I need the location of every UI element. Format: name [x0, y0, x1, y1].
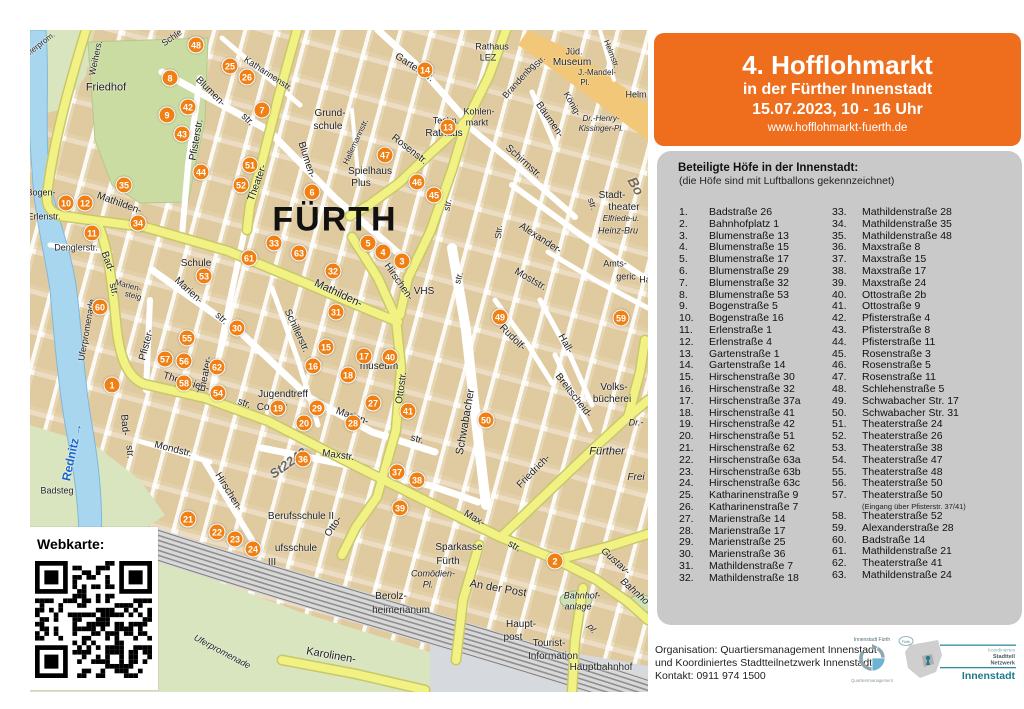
- map-label: Bahnhof-: [564, 592, 601, 601]
- map-marker-44: 44: [193, 164, 210, 181]
- participant-number: 27.: [679, 514, 705, 526]
- participant-address: Blumenstraße 32: [709, 278, 829, 290]
- map-label: Museum: [553, 58, 591, 68]
- city-name-label: FÜRTH: [272, 201, 397, 240]
- quartiersmanagement-logo: Innenstadt Fürth Quartiersmanagement: [851, 637, 893, 683]
- map-marker-11: 11: [84, 225, 101, 242]
- participant-number: 54.: [832, 455, 858, 467]
- participants-column-2: 33.Mathildenstraße 2834.Mathildenstraße …: [832, 207, 1017, 582]
- participant-number: 7.: [679, 278, 705, 290]
- map-label: Denglerstr.: [54, 244, 98, 253]
- svg-text:Stadtteil: Stadtteil: [993, 654, 1016, 660]
- participant-address: Theaterstraße 47: [862, 455, 1017, 467]
- participant-row: 63.Mathildenstraße 24: [832, 570, 1017, 582]
- map-marker-43: 43: [174, 126, 191, 143]
- map-label: schule: [314, 122, 343, 132]
- participant-number: 16.: [679, 384, 705, 396]
- participant-number: 39.: [832, 278, 858, 290]
- participant-row: 12.Erlenstraße 4: [679, 337, 829, 349]
- map-marker-26: 26: [239, 69, 256, 86]
- map-marker-21: 21: [180, 511, 197, 528]
- map-marker-10: 10: [58, 195, 75, 212]
- map-marker-27: 27: [365, 395, 382, 412]
- participant-address: Mathildenstraße 35: [862, 219, 1017, 231]
- map-marker-17: 17: [356, 348, 373, 365]
- map-label: Haupt-: [506, 620, 536, 630]
- participant-row: 39.Maxstraße 24: [832, 278, 1017, 290]
- map-label: Berolz-: [375, 592, 407, 602]
- participant-number: 57.: [832, 490, 858, 502]
- participant-row: 31.Mathildenstraße 7: [679, 561, 829, 573]
- participant-address: Mathildenstraße 18: [709, 573, 829, 585]
- map-label: Sparkasse: [435, 543, 482, 553]
- map-marker-36: 36: [295, 451, 312, 468]
- map-marker-24: 24: [245, 541, 262, 558]
- participant-row: 32.Mathildenstraße 18: [679, 573, 829, 585]
- participant-address: Bahnhofplatz 1: [709, 219, 829, 231]
- map-marker-39: 39: [392, 500, 409, 517]
- participants-heading: Beteiligte Höfe in der Innenstadt:: [678, 162, 1022, 174]
- svg-text:Koordiniertes: Koordiniertes: [988, 648, 1016, 653]
- participant-row: 48.Schlehenstraße 5: [832, 384, 1017, 396]
- map-marker-22: 22: [209, 524, 226, 541]
- map-marker-6: 6: [304, 184, 321, 201]
- map-marker-34: 34: [130, 215, 147, 232]
- map-marker-31: 31: [328, 304, 345, 321]
- map-label: Hauptbahnhof: [570, 663, 633, 673]
- participant-row: 21.Hirschenstraße 62: [679, 443, 829, 455]
- participant-address: Hirschenstraße 63a: [709, 455, 829, 467]
- participant-address: Blumenstraße 29: [709, 266, 829, 278]
- map-label: Elfriede-u.: [603, 215, 639, 223]
- map-label: Ha: [639, 276, 648, 285]
- participant-row: 54.Theaterstraße 47: [832, 455, 1017, 467]
- participant-number: 11.: [679, 325, 705, 337]
- participant-address: Pfisterstraße 8: [862, 325, 1017, 337]
- map-label: Information: [528, 652, 578, 662]
- participant-number: 31.: [679, 561, 705, 573]
- footer-logos: Innenstadt Fürth Quartiersmanagement Für…: [848, 630, 1024, 692]
- participant-address: Erlenstraße 4: [709, 337, 829, 349]
- map-label: Comödien-: [411, 570, 455, 579]
- participant-number: 58.: [832, 511, 858, 523]
- map-marker-61: 61: [241, 250, 258, 267]
- participant-number: 12.: [679, 337, 705, 349]
- map-label: anlage: [564, 603, 591, 612]
- participant-number: 34.: [832, 219, 858, 231]
- participant-row: 59.Alexanderstraße 28: [832, 523, 1017, 535]
- webkarte-title: Webkarte:: [37, 536, 158, 552]
- map-label: Badsteg: [40, 487, 73, 496]
- participant-row: 11.Erlenstraße 1: [679, 325, 829, 337]
- svg-text:Quartiersmanagement: Quartiersmanagement: [851, 678, 893, 683]
- map-marker-16: 16: [305, 358, 322, 375]
- map-marker-30: 30: [229, 320, 246, 337]
- map-label: Berufsschule II: [268, 512, 334, 522]
- organisation-line-1: Organisation: Quartiersmanagement Innens…: [655, 644, 877, 657]
- svg-text:Innenstadt: Innenstadt: [962, 670, 1016, 682]
- map-label: Str.: [494, 225, 504, 239]
- map-label: Pl.: [580, 79, 589, 87]
- map-marker-56: 56: [176, 353, 193, 370]
- organisation-info: Organisation: Quartiersmanagement Innens…: [655, 644, 877, 683]
- participant-row: 22.Hirschenstraße 63a: [679, 455, 829, 467]
- map-marker-12: 12: [77, 195, 94, 212]
- participant-number: 63.: [832, 570, 858, 582]
- map-marker-47: 47: [377, 147, 394, 164]
- map-marker-53: 53: [196, 268, 213, 285]
- participant-address: Maxstraße 17: [862, 266, 1017, 278]
- participant-address: Katharinenstraße 7: [709, 502, 829, 514]
- map-marker-35: 35: [116, 177, 133, 194]
- participant-number: 53.: [832, 443, 858, 455]
- participant-number: 44.: [832, 337, 858, 349]
- map-label: theater: [608, 203, 639, 213]
- participant-row: 38.Maxstraße 17: [832, 266, 1017, 278]
- map-marker-33: 33: [266, 235, 283, 252]
- map-label: str.: [123, 445, 134, 459]
- map-label: Tourist-: [533, 639, 566, 649]
- event-datetime: 15.07.2023, 10 - 16 Uhr: [654, 100, 1021, 120]
- event-website-link[interactable]: www.hofflohmarkt-fuerth.de: [654, 120, 1021, 136]
- map-marker-60: 60: [92, 299, 109, 316]
- participant-row: 49.Schwabacher Str. 17: [832, 396, 1017, 408]
- participant-row: 57.Theaterstraße 50(Eingang über Pfister…: [832, 490, 1017, 511]
- participant-row: 53.Theaterstraße 38: [832, 443, 1017, 455]
- map-marker-40: 40: [382, 349, 399, 366]
- map-label: Kissinger-Pl.: [579, 125, 624, 133]
- participant-number: 38.: [832, 266, 858, 278]
- map-label: J.-Mandel-: [578, 69, 616, 77]
- svg-text:Fürth: Fürth: [902, 640, 910, 644]
- map-marker-45: 45: [426, 187, 443, 204]
- participant-address: Pfisterstraße 11: [862, 337, 1017, 349]
- map-label: bücherei: [593, 395, 631, 405]
- map-label: Bogen-: [30, 189, 56, 198]
- participant-number: 22.: [679, 455, 705, 467]
- map-marker-42: 42: [180, 99, 197, 116]
- map-marker-46: 46: [409, 174, 426, 191]
- map-marker-50: 50: [478, 412, 495, 429]
- map-marker-38: 38: [409, 472, 426, 489]
- map-marker-23: 23: [227, 531, 244, 548]
- map-marker-9: 9: [159, 107, 176, 124]
- participants-column-1: 1.Badstraße 262.Bahnhofplatz 13.Blumenst…: [679, 207, 829, 585]
- participants-panel: Beteiligte Höfe in der Innenstadt: (die …: [657, 151, 1022, 625]
- map-marker-28: 28: [345, 415, 362, 432]
- participant-address: Theaterstraße 52: [862, 511, 1017, 523]
- map-marker-32: 32: [325, 263, 342, 280]
- map-marker-62: 62: [209, 359, 226, 376]
- participant-number: 43.: [832, 325, 858, 337]
- participant-row: 27.Marienstraße 14: [679, 514, 829, 526]
- map-marker-41: 41: [400, 403, 417, 420]
- participant-number: 17.: [679, 396, 705, 408]
- map-marker-63: 63: [291, 245, 308, 262]
- participant-address: Theaterstraße 38: [862, 443, 1017, 455]
- participant-address: Erlenstraße 1: [709, 325, 829, 337]
- map-marker-49: 49: [492, 309, 509, 326]
- map-marker-2: 2: [547, 553, 564, 570]
- map-marker-48: 48: [188, 37, 205, 54]
- map-label: Dr.-Henry-: [582, 115, 619, 123]
- participant-address: Hirschenstraße 62: [709, 443, 829, 455]
- participant-number: 59.: [832, 523, 858, 535]
- map-label: Amts-: [603, 260, 627, 269]
- participant-address: Mathildenstraße 24: [862, 570, 1017, 582]
- map-marker-29: 29: [309, 400, 326, 417]
- participant-address: Marienstraße 14: [709, 514, 829, 526]
- event-title: 4. Hofflohmarkt: [654, 50, 1021, 80]
- participant-address: Theaterstraße 50: [862, 490, 1017, 502]
- participant-row: 35.Mathildenstraße 48: [832, 231, 1017, 243]
- event-subtitle: in der Fürther Innenstadt: [654, 80, 1021, 100]
- map-label: LEZ: [480, 54, 497, 63]
- participants-subheading: (die Höfe sind mit Luftballons gekennzei…: [679, 175, 1022, 187]
- participant-number: 48.: [832, 384, 858, 396]
- map-label: Jüd.: [565, 48, 582, 57]
- map-marker-1: 1: [104, 377, 121, 394]
- participant-address: Mathildenstraße 7: [709, 561, 829, 573]
- map-label: VHS: [414, 287, 435, 297]
- flyer-page: FÜRTH Uferprom.Weihers.SchleKatharinenst…: [0, 0, 1024, 709]
- map-label: Stadt-: [599, 191, 626, 201]
- map-marker-37: 37: [389, 464, 406, 481]
- event-header: 4. Hofflohmarkt in der Fürther Innenstad…: [654, 33, 1021, 146]
- map-label: Jugendtreff: [258, 390, 308, 400]
- map-marker-13: 13: [440, 119, 457, 136]
- stadtteilnetzwerk-logo: Fürth Koordiniertes Stadtteil Netzwerk I…: [899, 637, 1016, 683]
- map-marker-8: 8: [162, 70, 179, 87]
- svg-text:Innenstadt Fürth: Innenstadt Fürth: [854, 637, 891, 643]
- map-label: Plus: [351, 179, 370, 189]
- map-label: Bad-: [118, 414, 130, 436]
- webkarte-box: Webkarte:: [30, 527, 158, 690]
- map-label: Pl.: [423, 581, 434, 590]
- svg-text:Netzwerk: Netzwerk: [990, 661, 1015, 667]
- map-label: markt: [466, 119, 489, 128]
- participant-row: 26.Katharinenstraße 7: [679, 502, 829, 514]
- participant-row: 44.Pfisterstraße 11: [832, 337, 1017, 349]
- map-label: Fürther: [589, 447, 624, 458]
- map-label: ufsschule: [275, 544, 317, 554]
- participant-number: 32.: [679, 573, 705, 585]
- map-marker-52: 52: [233, 177, 250, 194]
- map-marker-15: 15: [318, 339, 335, 356]
- map-label: Kohlen-: [463, 108, 494, 117]
- participant-row: 7.Blumenstraße 32: [679, 278, 829, 290]
- map-label: Heinz-Bru: [598, 227, 638, 236]
- map-label: post: [504, 633, 523, 643]
- organisation-line-3: Kontakt: 0911 974 1500: [655, 670, 877, 683]
- map-marker-14: 14: [417, 62, 434, 79]
- map-marker-54: 54: [210, 385, 227, 402]
- map-marker-18: 18: [340, 367, 357, 384]
- qr-code-icon: [35, 561, 152, 678]
- map-label: Volks-: [600, 383, 627, 393]
- participant-row: 17.Hirschenstraße 37a: [679, 396, 829, 408]
- participant-row: 6.Blumenstraße 29: [679, 266, 829, 278]
- participant-row: 43.Pfisterstraße 8: [832, 325, 1017, 337]
- map-label: Frei: [627, 473, 644, 483]
- participant-address: Maxstraße 24: [862, 278, 1017, 290]
- participant-number: 6.: [679, 266, 705, 278]
- participant-address: Schlehenstraße 5: [862, 384, 1017, 396]
- participant-address: Hirschenstraße 37a: [709, 396, 829, 408]
- map-label: Erlenstr.: [30, 213, 61, 222]
- map-marker-3: 3: [394, 253, 411, 270]
- participant-address: Hirschenstraße 32: [709, 384, 829, 396]
- map-label: Spielhaus: [348, 167, 392, 177]
- participant-number: 49.: [832, 396, 858, 408]
- map-label: Friedhof: [86, 83, 126, 94]
- map-label: geric: [616, 273, 636, 282]
- map-label: Fürth: [436, 557, 459, 567]
- map-marker-55: 55: [179, 330, 196, 347]
- participant-address: Schwabacher Str. 17: [862, 396, 1017, 408]
- map-label: Grund-: [314, 109, 345, 119]
- participant-number: 2.: [679, 219, 705, 231]
- participant-number: 21.: [679, 443, 705, 455]
- participant-address: Alexanderstraße 28: [862, 523, 1017, 535]
- participant-row: 34.Mathildenstraße 35: [832, 219, 1017, 231]
- map-marker-51: 51: [242, 157, 259, 174]
- participant-row: 2.Bahnhofplatz 1: [679, 219, 829, 231]
- map-marker-4: 4: [375, 244, 392, 261]
- map-marker-59: 59: [613, 310, 630, 327]
- map-marker-7: 7: [254, 102, 271, 119]
- map-label: Rathaus: [475, 43, 509, 52]
- map-label: str.: [106, 282, 119, 297]
- map-marker-25: 25: [222, 58, 239, 75]
- participant-row: 58.Theaterstraße 52: [832, 511, 1017, 523]
- map-label: heimerianum: [372, 606, 430, 616]
- map-label: III: [268, 558, 276, 568]
- map-marker-57: 57: [157, 351, 174, 368]
- participant-row: 40.Ottostraße 2b: [832, 290, 1017, 302]
- map-marker-19: 19: [270, 400, 287, 417]
- map-marker-58: 58: [176, 375, 193, 392]
- map-marker-5: 5: [360, 235, 377, 252]
- participant-number: 26.: [679, 502, 705, 514]
- city-map: FÜRTH Uferprom.Weihers.SchleKatharinenst…: [30, 30, 648, 692]
- participant-row: 16.Hirschenstraße 32: [679, 384, 829, 396]
- map-label: Dr.-: [629, 419, 644, 428]
- map-label: Helm: [625, 91, 646, 100]
- map-marker-20: 20: [296, 415, 313, 432]
- organisation-line-2: und Koordiniertes Stadtteilnetzwerk Inne…: [655, 657, 877, 670]
